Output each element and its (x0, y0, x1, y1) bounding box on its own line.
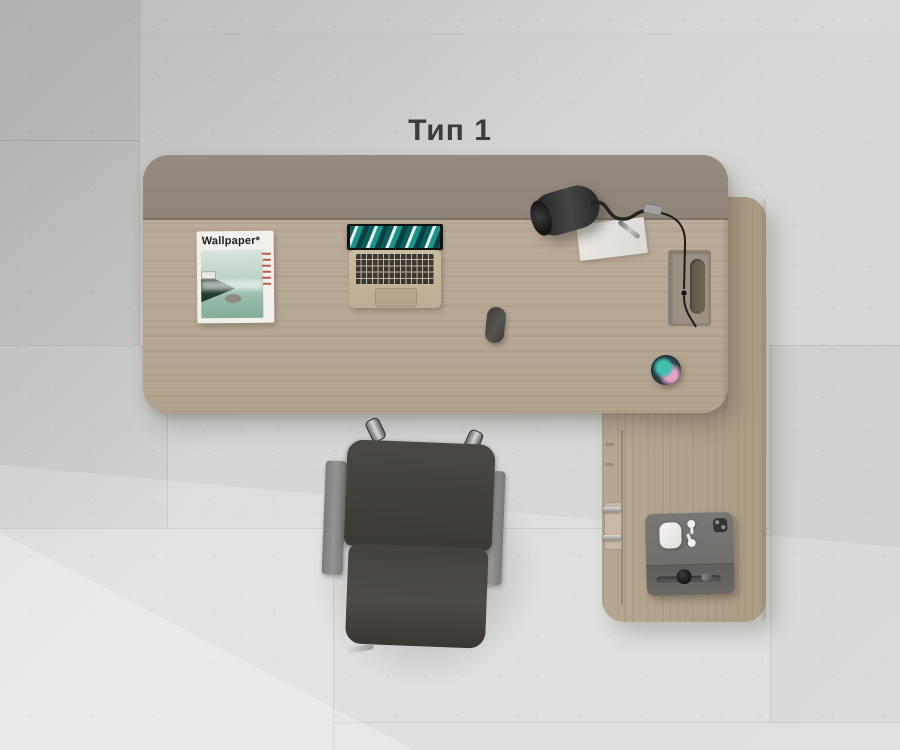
laptop-keyboard (356, 254, 434, 285)
camera-lens (715, 520, 719, 524)
earbud (687, 520, 695, 528)
cover-mist (201, 280, 263, 291)
camera-lens (721, 525, 725, 529)
grommet-cutout (690, 259, 705, 314)
magazine-cover-art (201, 250, 264, 319)
dock-detail (702, 573, 712, 580)
laptop-wallpaper (350, 226, 440, 248)
cover-text-line (263, 271, 271, 273)
earbuds-case (659, 522, 682, 549)
chair-seat (345, 543, 489, 648)
camera-module (713, 518, 727, 532)
earbud-stem (687, 533, 693, 542)
cabinet-handle (603, 535, 621, 540)
laptop-body (349, 250, 441, 308)
earbud (687, 538, 697, 548)
page-title: Тип 1 (0, 114, 900, 148)
cover-text-line (263, 259, 271, 261)
cover-text-line (262, 277, 271, 279)
earbud-stem (690, 526, 693, 534)
magazine-title: Wallpaper* (202, 235, 261, 248)
smart-speaker (651, 355, 681, 385)
cover-text-line (263, 283, 271, 285)
desk-edge-shading (721, 218, 728, 413)
tablet-bottom-dock (646, 563, 735, 596)
cover-rock (225, 294, 241, 303)
cabinet-hinge (605, 443, 614, 446)
dock-knob (676, 569, 691, 584)
laptop (345, 222, 445, 310)
modesty-panel (143, 155, 728, 220)
office-chair (317, 414, 516, 661)
chair-armrest-left (322, 460, 347, 575)
cover-text-line (262, 253, 271, 255)
laptop-screen (347, 224, 443, 250)
laptop-trackpad (375, 288, 417, 307)
magazine: Wallpaper* (197, 231, 275, 324)
cover-text-line (262, 265, 271, 267)
scene: Тип 1 Wallpaper* (0, 0, 900, 750)
cover-label (201, 271, 216, 279)
chair-chrome-glint (343, 643, 374, 654)
cabinet-hinge (605, 463, 614, 466)
return-edge-shading (760, 197, 766, 622)
tablet-device (645, 512, 735, 596)
chair-backrest (344, 439, 496, 551)
cabinet-handle (603, 507, 621, 512)
cable-grommet (668, 250, 711, 326)
